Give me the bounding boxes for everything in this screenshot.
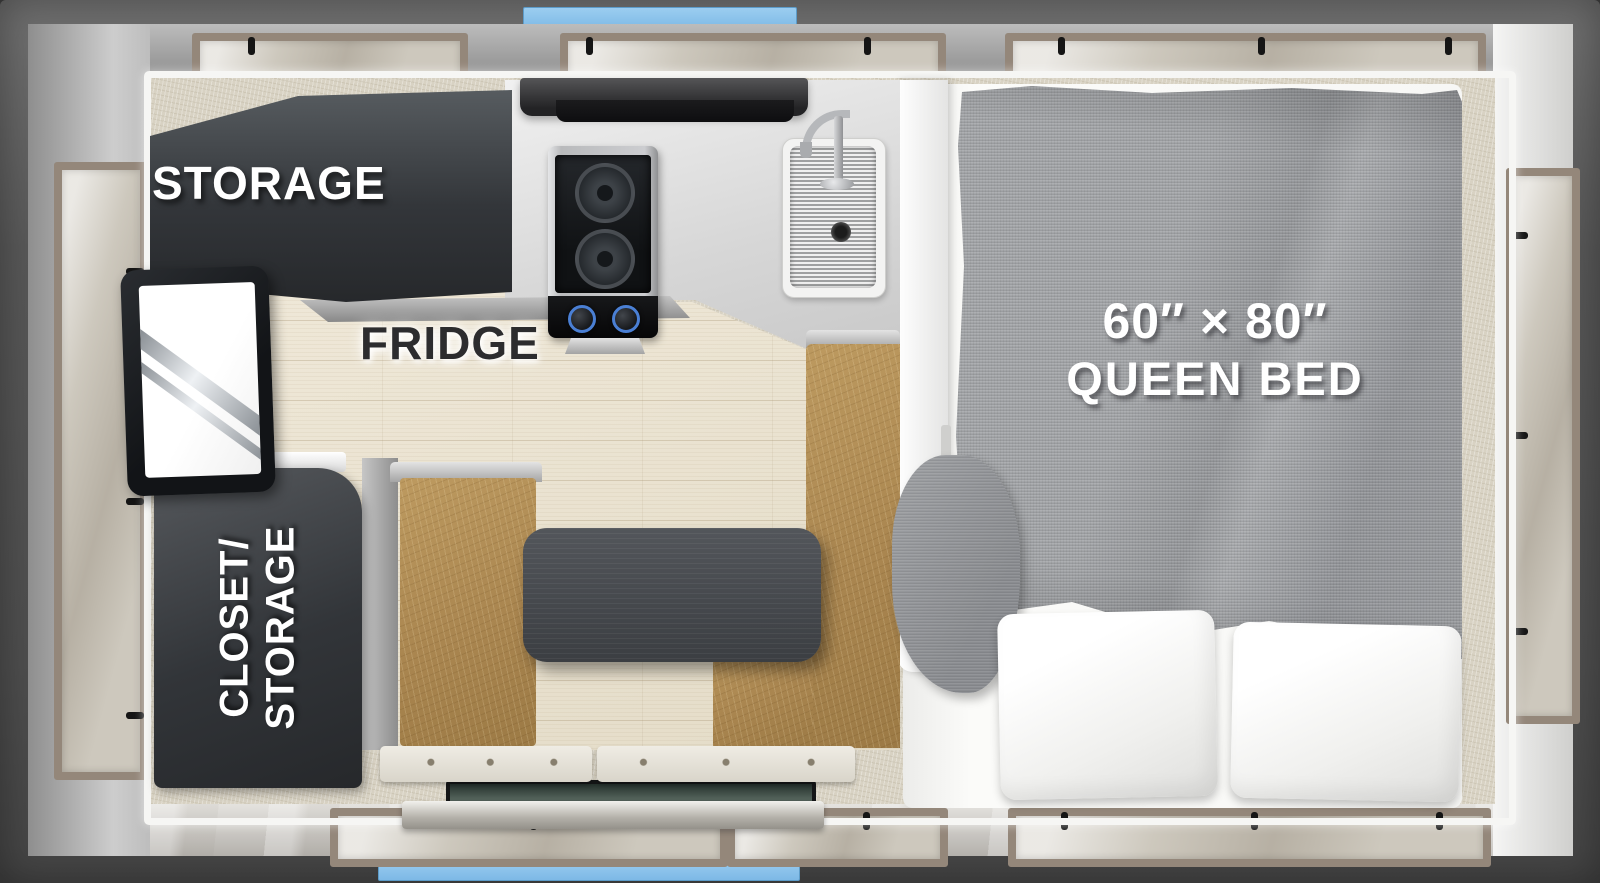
window-latch-icon <box>248 37 255 55</box>
pillow-right <box>1230 622 1462 803</box>
window-latch-icon <box>1058 37 1065 55</box>
two-burner-stove <box>548 146 658 338</box>
stove-knob <box>612 305 640 333</box>
entry-step <box>402 801 824 829</box>
window-latch-icon <box>126 498 144 505</box>
fridge-door <box>139 282 262 478</box>
window-latch-icon <box>586 37 593 55</box>
stove-tray <box>565 338 645 354</box>
closet-storage-label-text: CLOSET/ STORAGE <box>212 526 303 730</box>
closet-label-line1: CLOSET/ <box>212 526 258 730</box>
seat-cushion <box>380 746 592 782</box>
window-latch-icon <box>864 37 871 55</box>
bed-type-label: QUEEN BED <box>1000 351 1430 406</box>
burner-icon <box>575 163 635 223</box>
closet-label-line2: STORAGE <box>258 526 304 730</box>
burner-icon <box>575 229 635 289</box>
queen-bed-label: 60″ × 80″ QUEEN BED <box>1000 292 1430 406</box>
range-hood-vent <box>556 100 794 122</box>
sink-drain-icon <box>831 222 851 242</box>
faucet-base <box>820 178 854 190</box>
seat-cushion <box>597 746 855 782</box>
window-right <box>1506 168 1580 724</box>
bed-size-label: 60″ × 80″ <box>1000 292 1430 351</box>
camper-floorplan: STORAGE FRIDGE CLOSET/ STORAGE 60″ × 80″… <box>0 0 1600 883</box>
fridge-label: FRIDGE <box>360 316 540 370</box>
stove-knob <box>568 305 596 333</box>
window-latch-icon <box>126 712 144 719</box>
dinette-bench-left <box>400 478 536 746</box>
sink-basin <box>790 146 876 288</box>
stove-control-panel <box>548 296 658 338</box>
pillow-left <box>997 610 1218 801</box>
window-latch-icon <box>1258 37 1265 55</box>
closet-storage-label: CLOSET/ STORAGE <box>154 468 362 788</box>
closet-side-panel <box>362 458 398 750</box>
fridge <box>120 265 276 496</box>
storage-label: STORAGE <box>152 156 386 210</box>
faucet-riser <box>834 116 843 184</box>
dinette-table <box>523 528 821 662</box>
window-latch-icon <box>1445 37 1452 55</box>
faucet-tip <box>800 142 812 158</box>
stove-glass-cover <box>555 155 651 293</box>
